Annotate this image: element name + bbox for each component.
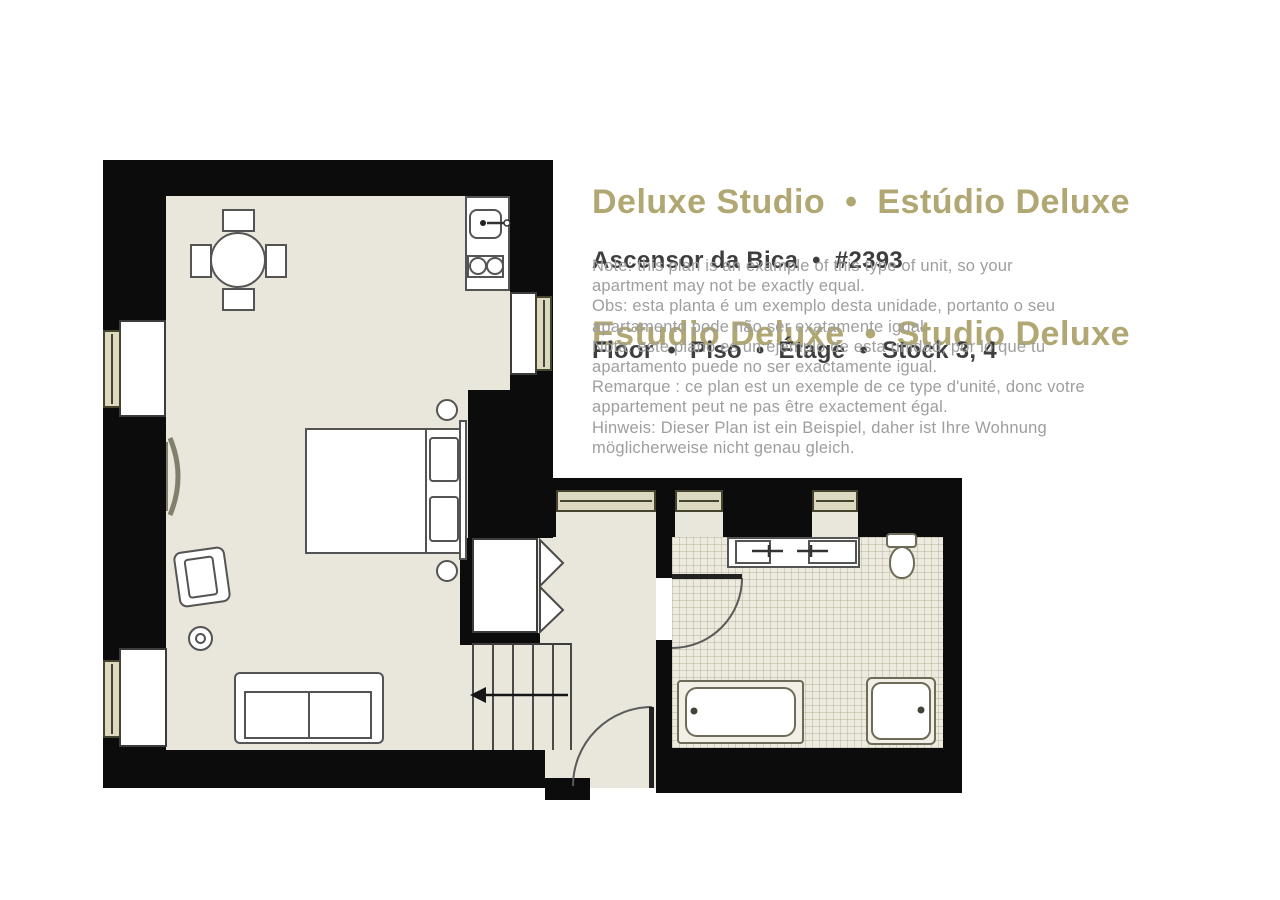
window-left-lower [103,660,121,738]
dining-chair [265,244,287,278]
window-hall [556,490,656,512]
side-table-inner [195,633,206,644]
wall-bath-bottom [656,748,962,793]
staircase [472,643,572,750]
wall-top [103,160,553,196]
window-niche [119,320,166,417]
wall-mid-block [468,390,553,538]
sofa [234,672,384,744]
window-bath-right [812,490,858,512]
dining-chair [222,209,255,232]
nightstand [436,560,458,582]
cooktop-burner [486,257,504,275]
window-reveal [812,512,858,537]
window-reveal [556,510,656,537]
window-left-upper [103,330,121,408]
dining-chair [190,244,212,278]
armchair-seat [183,555,218,599]
armchair [172,546,231,609]
floorplan-page: Deluxe Studio • Estúdio Deluxe Estudio D… [0,0,1280,900]
closet [472,538,538,633]
wall-entry-step [545,778,590,800]
vanity-basin [808,540,857,564]
bed-pillow [429,496,459,542]
window-niche [119,648,167,747]
dining-table [210,232,266,288]
bathtub-basin [685,687,796,737]
bed-pillow [429,437,459,482]
cooktop-burner [469,257,487,275]
bed-divider [425,430,427,552]
kitchen-sink [469,209,502,239]
dining-chair [222,288,255,311]
wall-bath-left-top [656,508,672,578]
wall-bottom-left [103,750,545,788]
bed-headboard [459,420,467,560]
toilet-bowl [889,546,915,579]
wall-closet-bottom [472,633,540,643]
window-bath-left [675,490,723,512]
sofa-seat-divider [308,693,310,737]
floor-plan [0,0,1280,900]
vanity-basin [735,540,771,564]
nightstand [436,399,458,421]
window-reveal [675,512,723,537]
shower-basin [871,682,931,740]
side-table [188,626,213,651]
wall-bath-left-bottom [656,640,672,750]
window-niche [510,292,537,375]
window-studio-right [535,296,552,371]
